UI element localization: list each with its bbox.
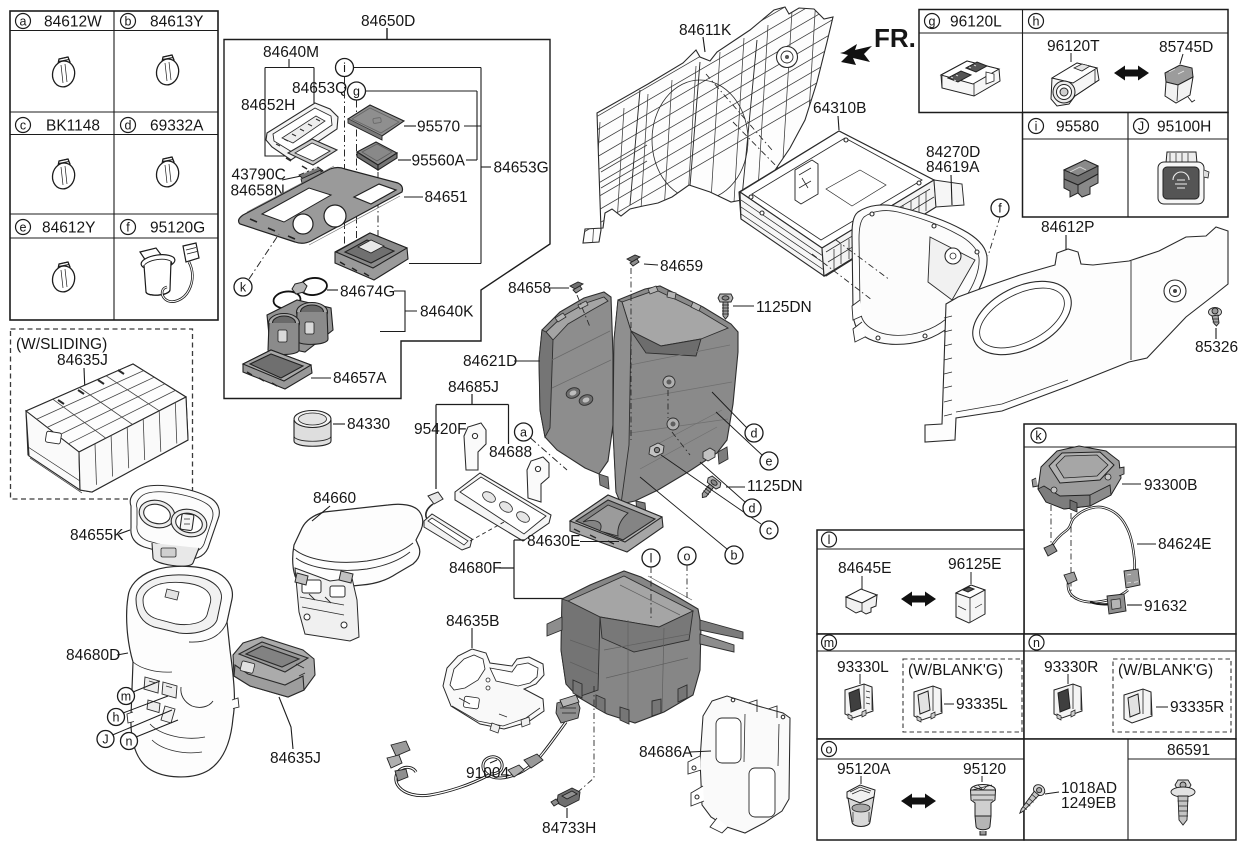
svg-text:95100H: 95100H — [1157, 119, 1211, 136]
svg-text:84653Q: 84653Q — [292, 80, 347, 97]
svg-text:f: f — [126, 221, 130, 235]
svg-text:1249EB: 1249EB — [1061, 795, 1116, 812]
svg-text:95560A: 95560A — [412, 153, 466, 170]
svg-text:93335L: 93335L — [956, 696, 1008, 713]
svg-text:c: c — [20, 119, 26, 133]
svg-text:BK1148: BK1148 — [46, 118, 100, 135]
svg-text:84613Y: 84613Y — [150, 14, 203, 31]
svg-text:84645E: 84645E — [838, 560, 891, 577]
svg-text:d: d — [125, 119, 132, 133]
svg-text:84674G: 84674G — [340, 284, 395, 301]
svg-text:84635J: 84635J — [270, 750, 321, 767]
svg-text:84619A: 84619A — [926, 159, 980, 176]
svg-text:86591: 86591 — [1167, 742, 1210, 759]
svg-text:a: a — [20, 15, 27, 29]
svg-text:n: n — [126, 735, 133, 749]
svg-text:84685J: 84685J — [448, 379, 499, 396]
svg-text:84621D: 84621D — [463, 353, 517, 370]
svg-text:84680D: 84680D — [66, 647, 120, 664]
svg-text:84612W: 84612W — [44, 14, 102, 31]
svg-text:e: e — [20, 221, 27, 235]
svg-text:64310B: 64310B — [813, 100, 866, 117]
svg-text:93330L: 93330L — [837, 659, 889, 676]
svg-text:f: f — [998, 202, 1002, 216]
svg-text:84650D: 84650D — [361, 13, 415, 30]
svg-text:93335R: 93335R — [1170, 699, 1224, 716]
svg-text:93300B: 93300B — [1144, 477, 1197, 494]
svg-text:84652H: 84652H — [241, 97, 295, 114]
svg-text:i: i — [1035, 120, 1038, 134]
svg-text:84680F: 84680F — [449, 560, 502, 577]
svg-text:84635J: 84635J — [57, 352, 108, 369]
svg-text:m: m — [824, 636, 834, 650]
svg-text:91004: 91004 — [466, 765, 509, 782]
svg-text:g: g — [929, 15, 936, 29]
svg-text:m: m — [121, 690, 131, 704]
svg-text:95570: 95570 — [417, 119, 460, 136]
svg-text:84733H: 84733H — [542, 820, 596, 837]
svg-text:g: g — [353, 85, 360, 99]
svg-text:85326: 85326 — [1195, 339, 1238, 356]
svg-text:84655K: 84655K — [70, 527, 124, 544]
svg-text:1125DN: 1125DN — [747, 478, 803, 495]
svg-text:95420F: 95420F — [414, 421, 467, 438]
svg-text:69332A: 69332A — [150, 118, 204, 135]
svg-text:h: h — [113, 711, 120, 725]
svg-text:(W/SLIDING): (W/SLIDING) — [16, 336, 107, 353]
svg-text:(W/BLANK'G): (W/BLANK'G) — [1118, 662, 1213, 679]
svg-text:43790C: 43790C — [232, 167, 286, 184]
svg-text:1125DN: 1125DN — [756, 299, 812, 316]
svg-text:b: b — [731, 549, 738, 563]
svg-text:96120L: 96120L — [950, 14, 1002, 31]
svg-text:84330: 84330 — [347, 416, 390, 433]
svg-text:k: k — [240, 281, 247, 295]
svg-text:l: l — [650, 552, 653, 566]
svg-text:84660: 84660 — [313, 490, 356, 507]
svg-text:84612P: 84612P — [1041, 219, 1094, 236]
svg-text:b: b — [125, 15, 132, 29]
svg-text:e: e — [766, 455, 773, 469]
svg-text:o: o — [684, 550, 691, 564]
svg-text:84635B: 84635B — [446, 613, 499, 630]
svg-text:84688: 84688 — [489, 444, 532, 461]
svg-text:84653G: 84653G — [494, 160, 549, 177]
svg-text:n: n — [1033, 636, 1040, 650]
svg-text:95120G: 95120G — [150, 220, 205, 237]
svg-text:84640M: 84640M — [263, 44, 319, 61]
svg-text:96120T: 96120T — [1047, 38, 1100, 55]
svg-text:J: J — [102, 733, 108, 747]
svg-text:93330R: 93330R — [1044, 659, 1098, 676]
svg-text:95580: 95580 — [1056, 119, 1099, 136]
svg-text:84651: 84651 — [425, 189, 468, 206]
svg-text:84611K: 84611K — [679, 22, 732, 39]
svg-text:J: J — [1138, 120, 1144, 134]
svg-text:a: a — [520, 426, 527, 440]
svg-text:FR.: FR. — [874, 23, 916, 53]
svg-text:d: d — [751, 427, 758, 441]
svg-text:95120: 95120 — [963, 761, 1006, 778]
svg-text:84630E: 84630E — [527, 533, 580, 550]
svg-text:(W/BLANK'G): (W/BLANK'G) — [908, 662, 1003, 679]
svg-text:k: k — [1035, 429, 1042, 443]
svg-text:84659: 84659 — [660, 258, 703, 275]
svg-text:85745D: 85745D — [1159, 39, 1213, 56]
svg-text:84612Y: 84612Y — [42, 220, 95, 237]
svg-text:84640K: 84640K — [420, 304, 474, 321]
svg-text:c: c — [766, 524, 772, 538]
svg-text:h: h — [1033, 15, 1040, 29]
svg-text:96125E: 96125E — [948, 556, 1001, 573]
svg-text:91632: 91632 — [1144, 598, 1187, 615]
svg-text:o: o — [826, 743, 833, 757]
svg-text:84624E: 84624E — [1158, 536, 1211, 553]
svg-text:l: l — [828, 533, 831, 547]
svg-text:d: d — [749, 502, 756, 516]
svg-text:84686A: 84686A — [639, 744, 693, 761]
svg-text:i: i — [343, 61, 346, 75]
svg-text:95120A: 95120A — [837, 761, 891, 778]
svg-text:84657A: 84657A — [333, 370, 387, 387]
svg-text:84658: 84658 — [508, 280, 551, 297]
